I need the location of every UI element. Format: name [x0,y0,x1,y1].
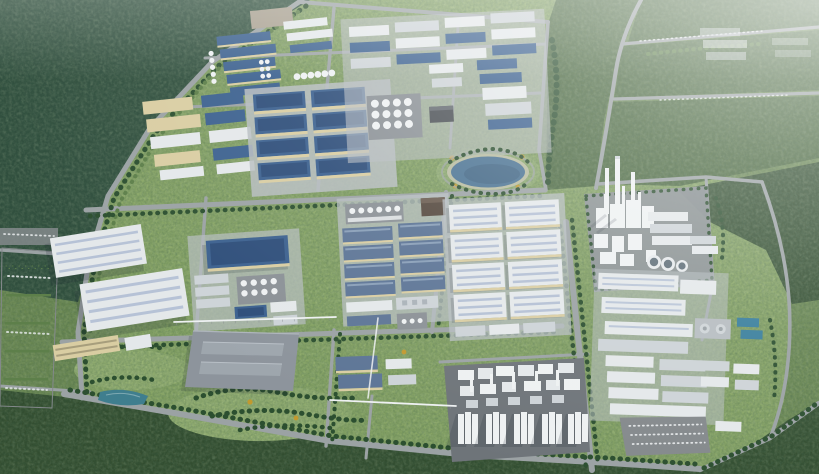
industrial-park-rendering: Aerial bird's-eye 3D rendering of an ind… [0,0,819,474]
atmospheric-haze [0,0,819,474]
rendering-canvas [0,0,819,474]
